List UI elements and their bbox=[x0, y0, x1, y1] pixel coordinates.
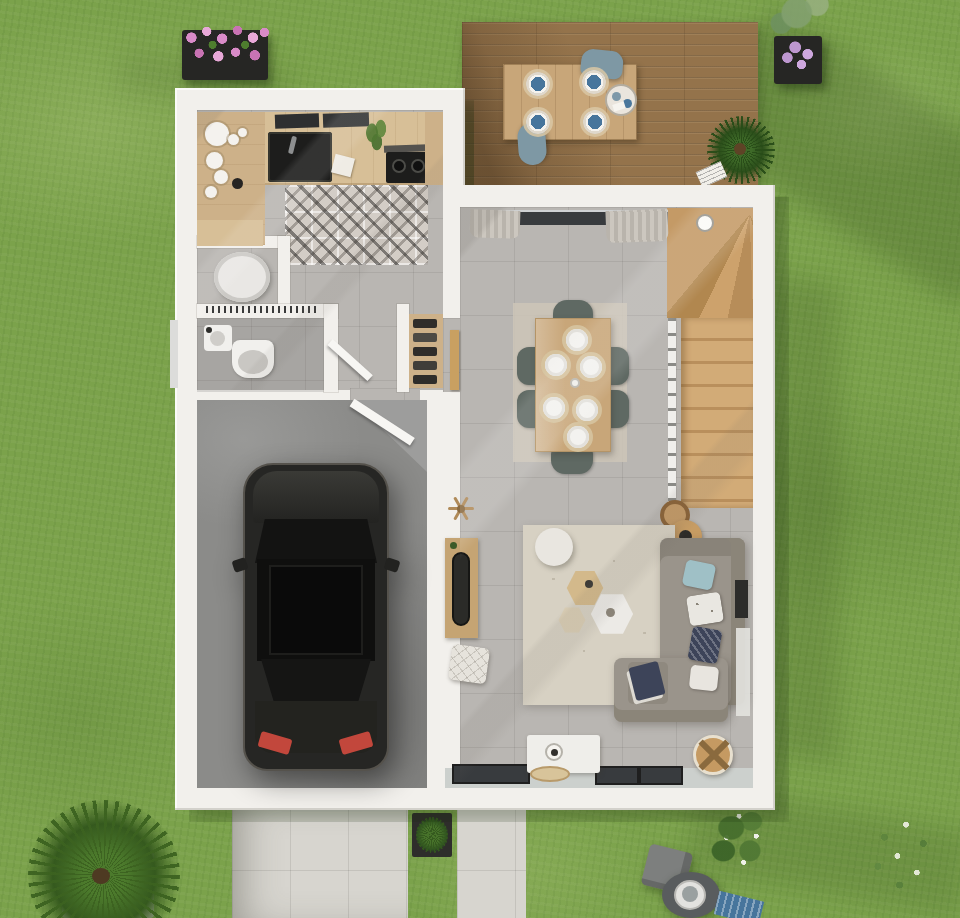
planter-grass-plant bbox=[416, 817, 448, 853]
cushion-navy bbox=[687, 626, 722, 665]
car-sunroof bbox=[269, 565, 363, 655]
wc-threshold-grille bbox=[206, 306, 318, 313]
curtain bbox=[470, 209, 521, 239]
round-pouf bbox=[535, 528, 573, 566]
dinner-plate bbox=[545, 354, 567, 376]
hall-storage-shelves bbox=[409, 314, 443, 388]
toilet-bowl bbox=[238, 350, 268, 374]
woven-plate bbox=[530, 766, 570, 782]
wc-basin-bowl bbox=[210, 331, 225, 346]
outdoor-place-setting bbox=[526, 110, 550, 134]
wooden-door-hall bbox=[450, 330, 459, 390]
twiggy-white-flower-bush bbox=[852, 806, 960, 910]
coffee-cup bbox=[232, 178, 243, 189]
kitchen-cabinet bbox=[197, 220, 263, 246]
dinner-plate bbox=[580, 356, 602, 378]
console-plant bbox=[450, 542, 457, 549]
floor-plan-render bbox=[0, 0, 960, 918]
outdoor-place-setting bbox=[582, 70, 606, 94]
dinner-plate bbox=[567, 426, 589, 448]
curtain bbox=[605, 209, 668, 243]
water-heater bbox=[214, 252, 270, 302]
garden-walkway bbox=[457, 808, 526, 918]
bottom-window bbox=[595, 766, 683, 785]
quilted-pouf bbox=[448, 644, 491, 685]
hob-burner bbox=[392, 159, 406, 173]
plate bbox=[205, 122, 229, 146]
palm-core bbox=[92, 868, 110, 884]
plate-stack bbox=[206, 152, 223, 169]
counter-plant bbox=[356, 116, 396, 158]
wicker-basket bbox=[693, 735, 733, 775]
serving-tray bbox=[605, 84, 637, 116]
wall-clock bbox=[696, 214, 714, 232]
car-hood bbox=[253, 471, 379, 523]
dinner-plate bbox=[576, 399, 598, 421]
wc-tap bbox=[206, 327, 212, 333]
side-curtain bbox=[736, 628, 750, 716]
stairs-railing bbox=[668, 318, 676, 508]
cup bbox=[238, 128, 247, 137]
driveway bbox=[232, 808, 408, 918]
leaning-mirror bbox=[452, 552, 470, 626]
cushion-white bbox=[689, 665, 719, 692]
cushion-white-dotted bbox=[686, 592, 724, 627]
dinner-plate bbox=[566, 329, 588, 351]
table-decor bbox=[606, 608, 615, 617]
outdoor-place-setting bbox=[526, 72, 550, 96]
cup bbox=[228, 134, 239, 145]
bowl bbox=[205, 186, 217, 198]
lilac-flowers bbox=[764, 0, 842, 80]
car-rear-window bbox=[261, 659, 371, 703]
table-lamp-base bbox=[551, 749, 558, 756]
wc-window bbox=[170, 320, 178, 388]
plate-stack bbox=[214, 170, 228, 184]
wall-tv-panel bbox=[735, 580, 748, 618]
cement-tile-floor bbox=[285, 185, 428, 265]
kitchen-counter-return bbox=[425, 112, 443, 185]
kitchen-window bbox=[275, 113, 319, 129]
dinner-plate bbox=[543, 397, 565, 419]
round-planter-plant bbox=[682, 886, 698, 902]
cup bbox=[612, 92, 621, 101]
kitchen-sink bbox=[268, 132, 332, 182]
napkin bbox=[612, 101, 626, 111]
outdoor-place-setting bbox=[583, 110, 607, 134]
pink-flowers bbox=[178, 22, 274, 74]
coat-stand-pole bbox=[457, 505, 465, 513]
bottom-window bbox=[452, 764, 530, 784]
hob-burner bbox=[411, 159, 425, 173]
stairs-straight-flight bbox=[681, 318, 753, 508]
car-windshield bbox=[255, 519, 377, 563]
yucca-plant-core bbox=[734, 143, 746, 155]
table-decor bbox=[585, 580, 593, 588]
hall-wall bbox=[397, 304, 409, 392]
table-vase bbox=[570, 378, 580, 388]
car-top-view bbox=[243, 463, 389, 771]
